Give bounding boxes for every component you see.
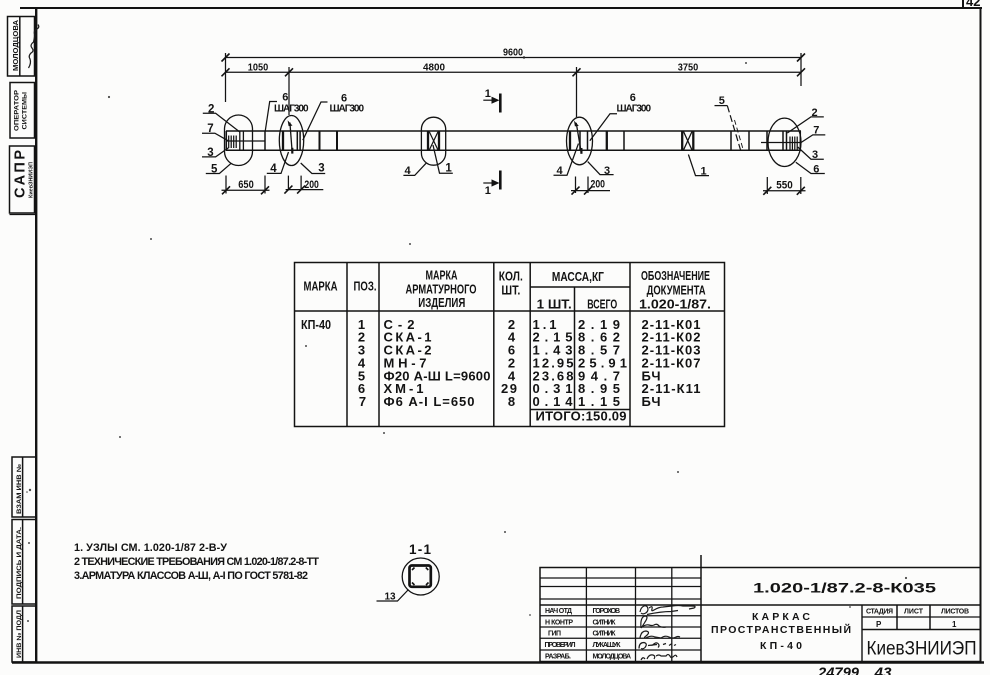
svg-text:200: 200 xyxy=(591,179,606,191)
svg-text:1-1: 1-1 xyxy=(409,542,431,557)
svg-text:3.АРМАТУРА КЛАССОВ А-Ш, А-I ПО: 3.АРМАТУРА КЛАССОВ А-Ш, А-I ПО ГОСТ 5781… xyxy=(74,570,308,582)
svg-text:ЛИСТОВ: ЛИСТОВ xyxy=(941,609,969,616)
svg-text:ПОДПИСЬ И ДАТА.: ПОДПИСЬ И ДАТА. xyxy=(16,527,23,599)
svg-text:2 ТЕХНИЧЕСКИЕ ТРЕБОВАНИЯ СМ 1.: 2 ТЕХНИЧЕСКИЕ ТРЕБОВАНИЯ СМ 1.020-1/87.2… xyxy=(74,556,319,568)
svg-text:МОЛОДЦОВА: МОЛОДЦОВА xyxy=(11,19,20,71)
svg-text:7: 7 xyxy=(207,123,213,135)
svg-text:1.15: 1.15 xyxy=(578,394,620,409)
svg-text:КиевЗНИИЭП: КиевЗНИИЭП xyxy=(867,639,977,660)
svg-text:550: 550 xyxy=(776,180,793,192)
svg-text:СИТНИК: СИТНИК xyxy=(593,631,617,638)
svg-text:0.14: 0.14 xyxy=(533,394,574,409)
svg-text:1.020-1/87.2-8-К035: 1.020-1/87.2-8-К035 xyxy=(753,580,936,596)
svg-text:6: 6 xyxy=(813,164,819,176)
svg-text:1 ШТ.: 1 ШТ. xyxy=(537,297,572,312)
svg-text:МАССА,КГ: МАССА,КГ xyxy=(552,269,604,284)
svg-text:13: 13 xyxy=(385,592,396,603)
svg-text:2: 2 xyxy=(208,103,214,115)
svg-text:ШАГ300: ШАГ300 xyxy=(330,103,365,114)
svg-text:КиевЗНИИЭП: КиевЗНИИЭП xyxy=(28,162,34,198)
svg-text:ИТОГО:150.09: ИТОГО:150.09 xyxy=(536,409,627,424)
svg-text:МАРКА: МАРКА xyxy=(426,268,458,283)
svg-text:Н КОНТР: Н КОНТР xyxy=(545,619,573,626)
svg-text:6: 6 xyxy=(630,92,636,104)
svg-text:СТАДИЯ: СТАДИЯ xyxy=(866,609,893,616)
svg-text:200: 200 xyxy=(304,179,319,191)
svg-text:8: 8 xyxy=(508,394,515,409)
svg-text:ЛИСТ: ЛИСТ xyxy=(904,609,924,616)
svg-text:МОЛОДЦОВА: МОЛОДЦОВА xyxy=(593,654,632,661)
svg-text:3750: 3750 xyxy=(678,62,699,74)
svg-text:4800: 4800 xyxy=(423,62,445,74)
svg-text:ШАГ300: ШАГ300 xyxy=(274,103,309,114)
svg-text:МАРКА: МАРКА xyxy=(304,279,338,294)
svg-text:Р: Р xyxy=(876,620,882,629)
svg-text:1: 1 xyxy=(445,162,452,174)
svg-text:1: 1 xyxy=(485,88,491,100)
svg-text:КП-40: КП-40 xyxy=(301,317,331,332)
svg-text:ВСЕГО: ВСЕГО xyxy=(587,297,617,312)
svg-text:3: 3 xyxy=(207,147,213,159)
svg-text:3: 3 xyxy=(318,163,324,175)
svg-text:ЛУКАШУК: ЛУКАШУК xyxy=(593,642,622,649)
svg-text:ГОРОХОВ: ГОРОХОВ xyxy=(593,608,621,615)
svg-text:НАЧ ОТД: НАЧ ОТД xyxy=(545,608,572,615)
svg-text:ШАГ300: ШАГ300 xyxy=(617,104,652,115)
svg-text:ШТ.: ШТ. xyxy=(501,283,520,298)
svg-text:42: 42 xyxy=(966,0,980,9)
svg-text:5: 5 xyxy=(211,164,218,176)
svg-text:ПОЗ.: ПОЗ. xyxy=(354,279,377,294)
svg-text:7: 7 xyxy=(813,125,819,137)
svg-text:3: 3 xyxy=(812,149,818,161)
svg-text:ПРОВЕРИЛ: ПРОВЕРИЛ xyxy=(545,642,576,649)
svg-text:6: 6 xyxy=(282,92,288,104)
svg-text:БЧ: БЧ xyxy=(642,394,661,409)
svg-text:ПРОСТРАНСТВЕННЫЙ: ПРОСТРАНСТВЕННЫЙ xyxy=(711,623,851,636)
svg-text:43: 43 xyxy=(873,666,891,675)
svg-text:ИЗДЕЛИЯ: ИЗДЕЛИЯ xyxy=(418,295,465,310)
svg-text:1: 1 xyxy=(952,620,957,629)
svg-text:9600: 9600 xyxy=(503,47,523,59)
svg-text:2: 2 xyxy=(812,107,818,119)
svg-text:650: 650 xyxy=(238,179,254,191)
svg-text:7: 7 xyxy=(359,394,366,409)
svg-text:КП-40: КП-40 xyxy=(760,640,802,652)
svg-text:КОЛ.: КОЛ. xyxy=(499,269,523,284)
svg-text:ДОКУМЕНТА: ДОКУМЕНТА xyxy=(647,283,706,298)
svg-text:РАЗРАБ.: РАЗРАБ. xyxy=(545,654,571,661)
svg-text:ГИП: ГИП xyxy=(548,631,561,638)
svg-text:СИСТЕМЫ: СИСТЕМЫ xyxy=(22,92,29,130)
svg-text:Ф6 А-I L=650: Ф6 А-I L=650 xyxy=(384,394,475,409)
svg-text:ИНВ № ПОДЛ: ИНВ № ПОДЛ xyxy=(16,610,23,658)
svg-text:СИТНИК: СИТНИК xyxy=(593,619,617,626)
svg-text:ВЗАМ ИНВ №: ВЗАМ ИНВ № xyxy=(16,464,23,514)
svg-text:1050: 1050 xyxy=(248,62,269,74)
svg-text:24799: 24799 xyxy=(817,666,859,675)
svg-text:ОБОЗНАЧЕНИЕ: ОБОЗНАЧЕНИЕ xyxy=(641,268,710,283)
svg-text:1. УЗЛЫ СМ. 1.020-1/87 2-В-У: 1. УЗЛЫ СМ. 1.020-1/87 2-В-У xyxy=(74,542,227,554)
svg-text:ОПЕРАТОР: ОПЕРАТОР xyxy=(14,89,21,131)
svg-text:1.020-1/87.: 1.020-1/87. xyxy=(639,297,711,312)
svg-text:1: 1 xyxy=(485,185,491,197)
